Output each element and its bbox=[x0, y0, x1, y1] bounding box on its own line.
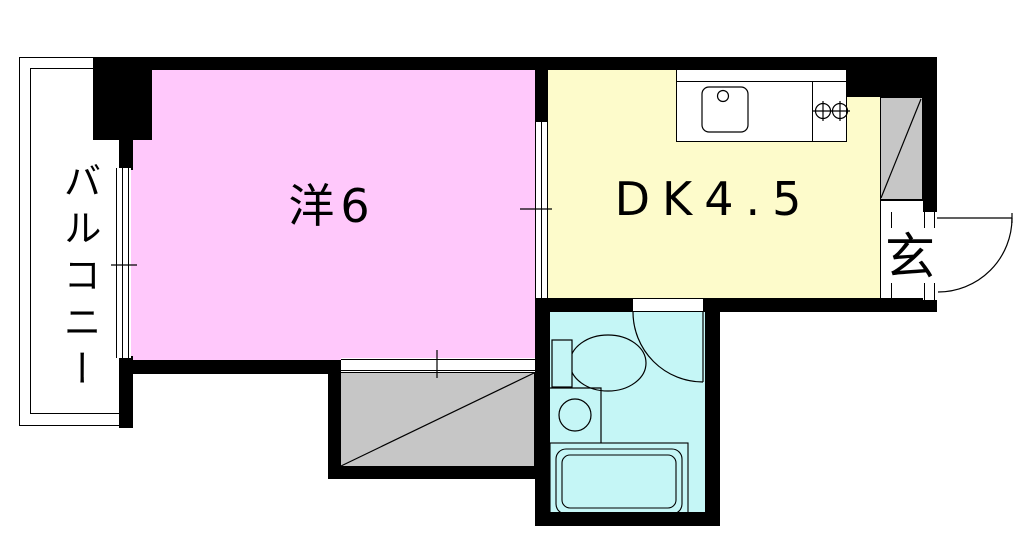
shoe-closet-entrance bbox=[880, 97, 923, 200]
floor-plan: バルコニー 洋6 DK4.5 玄 bbox=[0, 0, 1027, 542]
closet-below-western-room bbox=[340, 372, 535, 467]
closet-sliding-door-line bbox=[341, 359, 535, 360]
wall-closet-left bbox=[328, 372, 341, 479]
bathroom-door-opening bbox=[633, 298, 703, 312]
wall-bathroom-right bbox=[705, 298, 720, 526]
kitchen-counter-shelf-line bbox=[677, 81, 846, 82]
western-room-label: 洋6 bbox=[262, 183, 402, 229]
kitchen-counter-divider-line bbox=[812, 82, 813, 141]
entrance-door-jamb bbox=[934, 212, 935, 228]
wall-divider-top bbox=[535, 57, 548, 122]
wall-closet-bottom bbox=[328, 467, 550, 479]
bathroom-floor bbox=[550, 311, 705, 512]
wall-top-left-block bbox=[93, 57, 152, 140]
kitchen-counter bbox=[676, 69, 847, 142]
wall-right bbox=[923, 57, 937, 215]
balcony-window-line bbox=[116, 168, 117, 358]
balcony-label: バルコニー bbox=[54, 148, 98, 408]
entrance-label: 玄 bbox=[884, 232, 936, 282]
wall-bathroom-left bbox=[535, 298, 550, 526]
wall-dk-bottom bbox=[535, 298, 937, 312]
wall-left-upper bbox=[119, 140, 133, 170]
bathroom-door-threshold-line bbox=[633, 311, 703, 312]
closet-sliding-door-line bbox=[341, 370, 535, 371]
wall-bathroom-bottom bbox=[535, 512, 720, 526]
balcony-window-line bbox=[128, 168, 129, 358]
entrance-frame-mark bbox=[891, 212, 892, 228]
wall-western-bottom bbox=[130, 360, 341, 374]
sliding-door-line bbox=[541, 122, 542, 298]
sliding-door-line bbox=[535, 122, 536, 298]
bathroom-door-threshold-line bbox=[633, 298, 703, 299]
entrance-door-jamb bbox=[924, 212, 925, 228]
entrance-swing-door bbox=[937, 213, 1012, 292]
sliding-door-line bbox=[547, 122, 548, 298]
dining-kitchen-label: DK4.5 bbox=[584, 176, 844, 222]
wall-top bbox=[93, 57, 937, 70]
balcony-window-line bbox=[122, 168, 123, 358]
